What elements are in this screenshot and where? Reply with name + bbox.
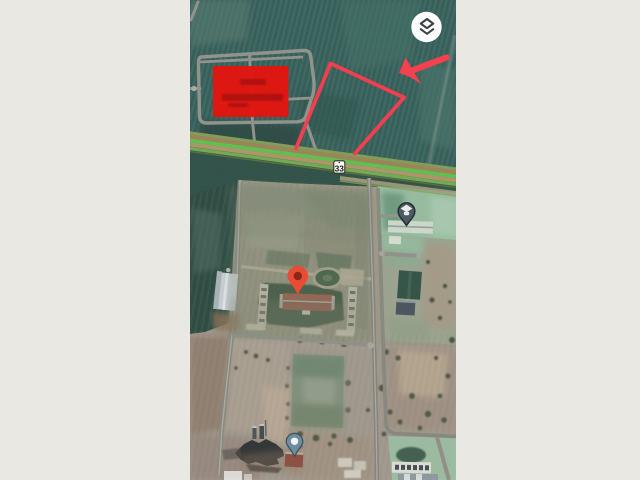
svg-text:33: 33 — [335, 163, 345, 173]
